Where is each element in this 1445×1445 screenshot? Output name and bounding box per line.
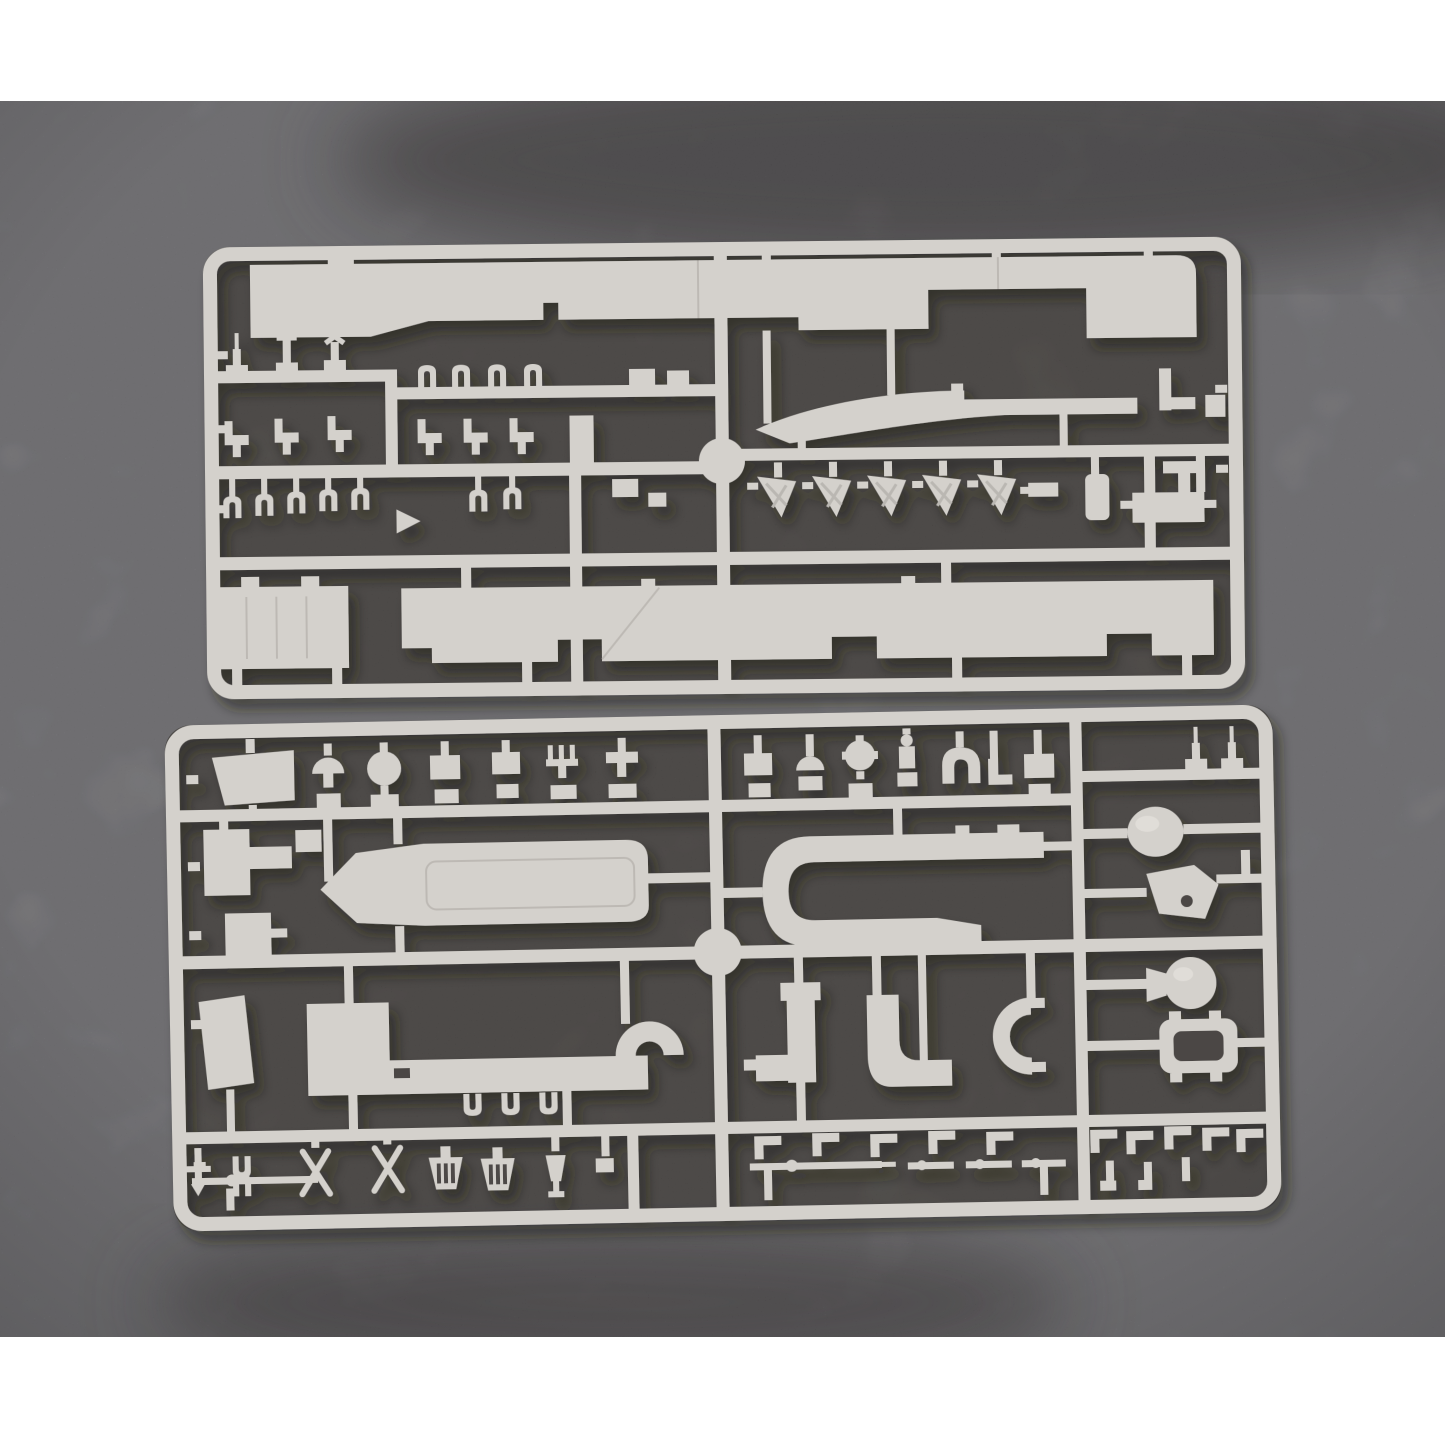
small-part	[492, 752, 520, 775]
small-part	[1205, 395, 1225, 417]
small-part	[744, 753, 772, 776]
small-part	[295, 830, 321, 852]
small-part	[1020, 487, 1030, 494]
small-part	[1106, 1161, 1114, 1183]
small-part	[1178, 473, 1190, 493]
small-part	[225, 913, 272, 956]
photo-page	[0, 0, 1445, 1445]
small-part	[1144, 1162, 1152, 1182]
small-part	[1085, 474, 1109, 520]
small-part	[629, 369, 655, 385]
small-part	[648, 493, 666, 507]
small-part	[1138, 1180, 1152, 1190]
small-part	[1024, 754, 1054, 779]
small-part	[1182, 1157, 1190, 1181]
small-part	[667, 370, 689, 384]
small-part	[1028, 483, 1058, 497]
ramp-part	[198, 995, 254, 1090]
sprue-photo	[0, 0, 1445, 1445]
small-part	[430, 755, 460, 780]
small-part	[1159, 397, 1195, 409]
small-part	[1100, 1180, 1116, 1190]
small-part	[1132, 492, 1204, 523]
small-part	[569, 415, 593, 462]
small-part	[612, 479, 638, 497]
small-part	[1163, 461, 1205, 473]
small-part	[212, 750, 295, 806]
